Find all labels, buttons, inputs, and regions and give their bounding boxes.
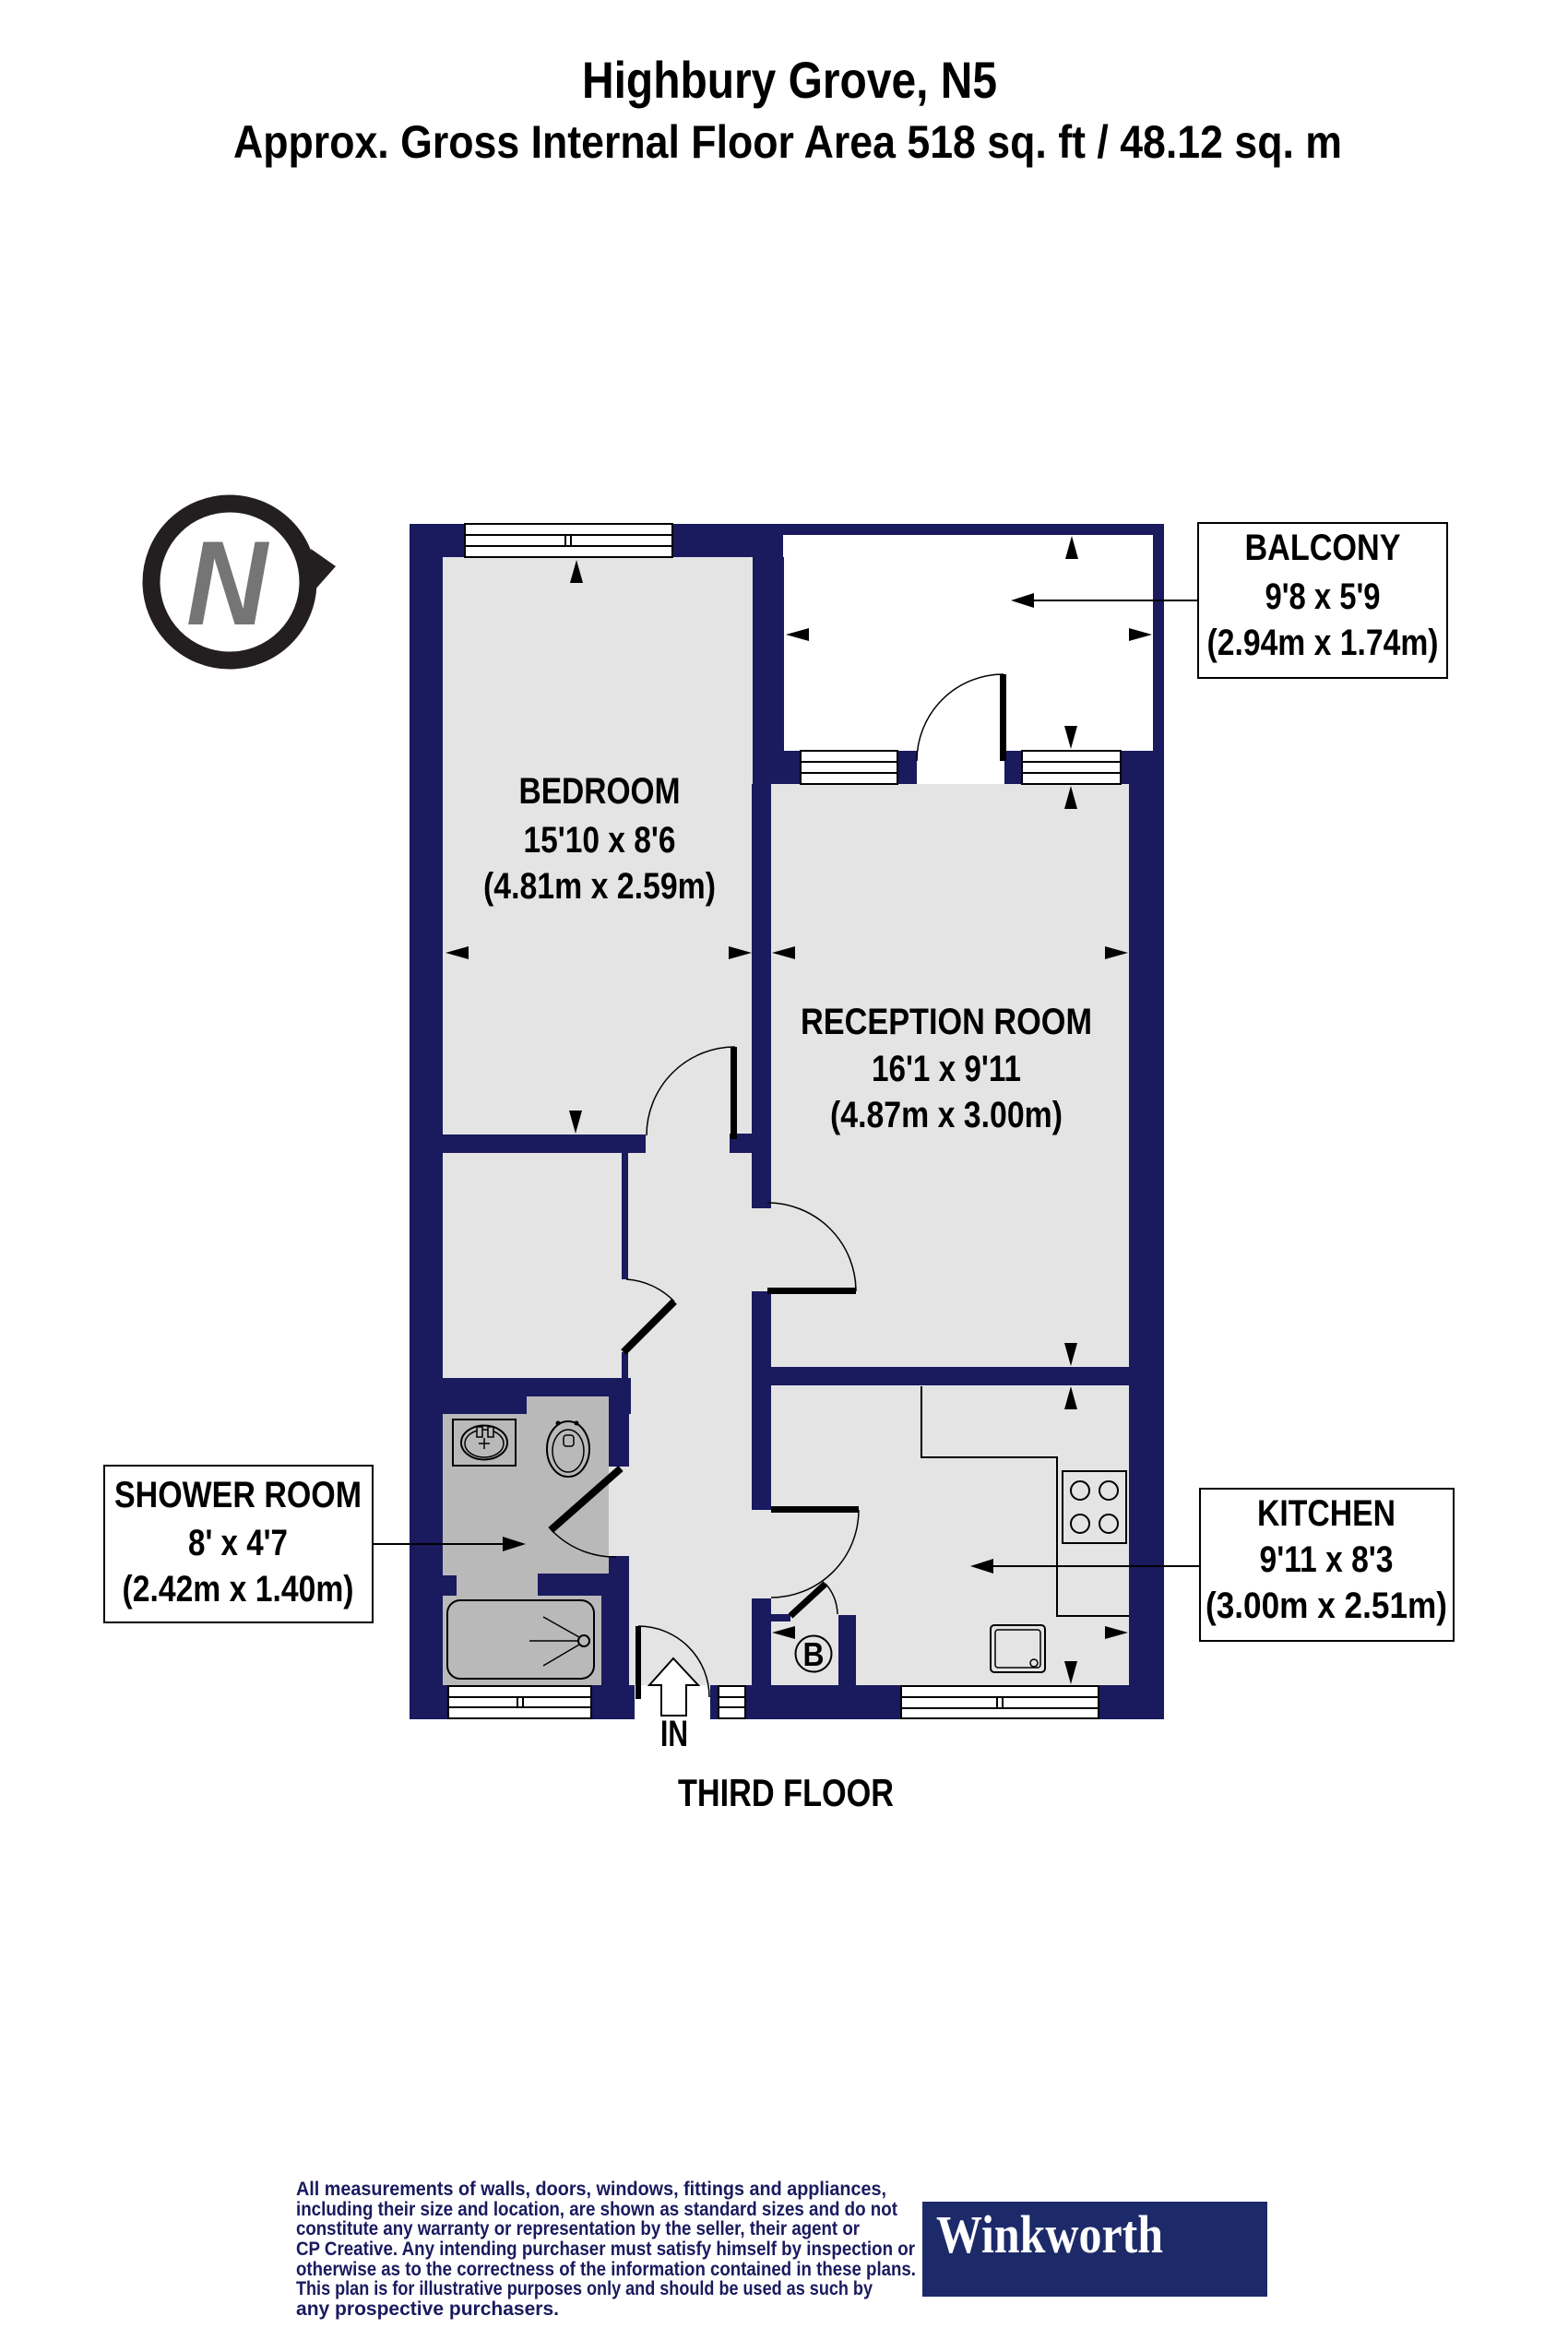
svg-text:otherwise as to the correctnes: otherwise as to the correctness of the i…: [296, 2259, 916, 2280]
svg-text:9'8 x 5'9: 9'8 x 5'9: [1265, 576, 1381, 617]
svg-text:any prospective purchasers.: any prospective purchasers.: [296, 2299, 559, 2320]
svg-text:Highbury Grove, N5: Highbury Grove, N5: [582, 51, 997, 109]
svg-text:(2.94m x 1.74m): (2.94m x 1.74m): [1207, 623, 1439, 663]
svg-text:Winkworth: Winkworth: [936, 2204, 1163, 2264]
svg-text:BALCONY: BALCONY: [1245, 528, 1401, 568]
svg-text:B: B: [803, 1635, 825, 1673]
svg-text:8' x 4'7: 8' x 4'7: [188, 1523, 288, 1563]
svg-text:KITCHEN: KITCHEN: [1257, 1493, 1396, 1534]
svg-text:This plan is for illustrative: This plan is for illustrative purposes o…: [296, 2278, 873, 2299]
svg-text:IN: IN: [660, 1714, 688, 1754]
svg-text:CP Creative. Any intending pur: CP Creative. Any intending purchaser mus…: [296, 2239, 915, 2260]
svg-text:(4.81m x 2.59m): (4.81m x 2.59m): [483, 866, 716, 907]
svg-text:THIRD FLOOR: THIRD FLOOR: [678, 1771, 894, 1814]
svg-text:RECEPTION ROOM: RECEPTION ROOM: [801, 1002, 1092, 1042]
svg-text:Approx. Gross Internal Floor A: Approx. Gross Internal Floor Area 518 sq…: [233, 116, 1342, 168]
svg-text:All measurements of walls, doo: All measurements of walls, doors, window…: [296, 2179, 886, 2200]
svg-text:BEDROOM: BEDROOM: [519, 771, 681, 812]
svg-text:(4.87m x 3.00m): (4.87m x 3.00m): [830, 1095, 1063, 1135]
svg-text:9'11 x 8'3: 9'11 x 8'3: [1260, 1539, 1394, 1580]
svg-text:constitute any warranty or rep: constitute any warranty or representatio…: [296, 2218, 860, 2239]
svg-text:SHOWER ROOM: SHOWER ROOM: [114, 1475, 362, 1515]
svg-text:including their size and locat: including their size and location, are s…: [296, 2199, 897, 2220]
svg-text:16'1 x 9'11: 16'1 x 9'11: [872, 1049, 1021, 1089]
svg-text:(3.00m x 2.51m): (3.00m x 2.51m): [1206, 1586, 1447, 1626]
svg-text:N: N: [186, 516, 270, 650]
svg-text:(2.42m x 1.40m): (2.42m x 1.40m): [123, 1569, 354, 1610]
svg-text:15'10 x 8'6: 15'10 x 8'6: [524, 820, 676, 861]
